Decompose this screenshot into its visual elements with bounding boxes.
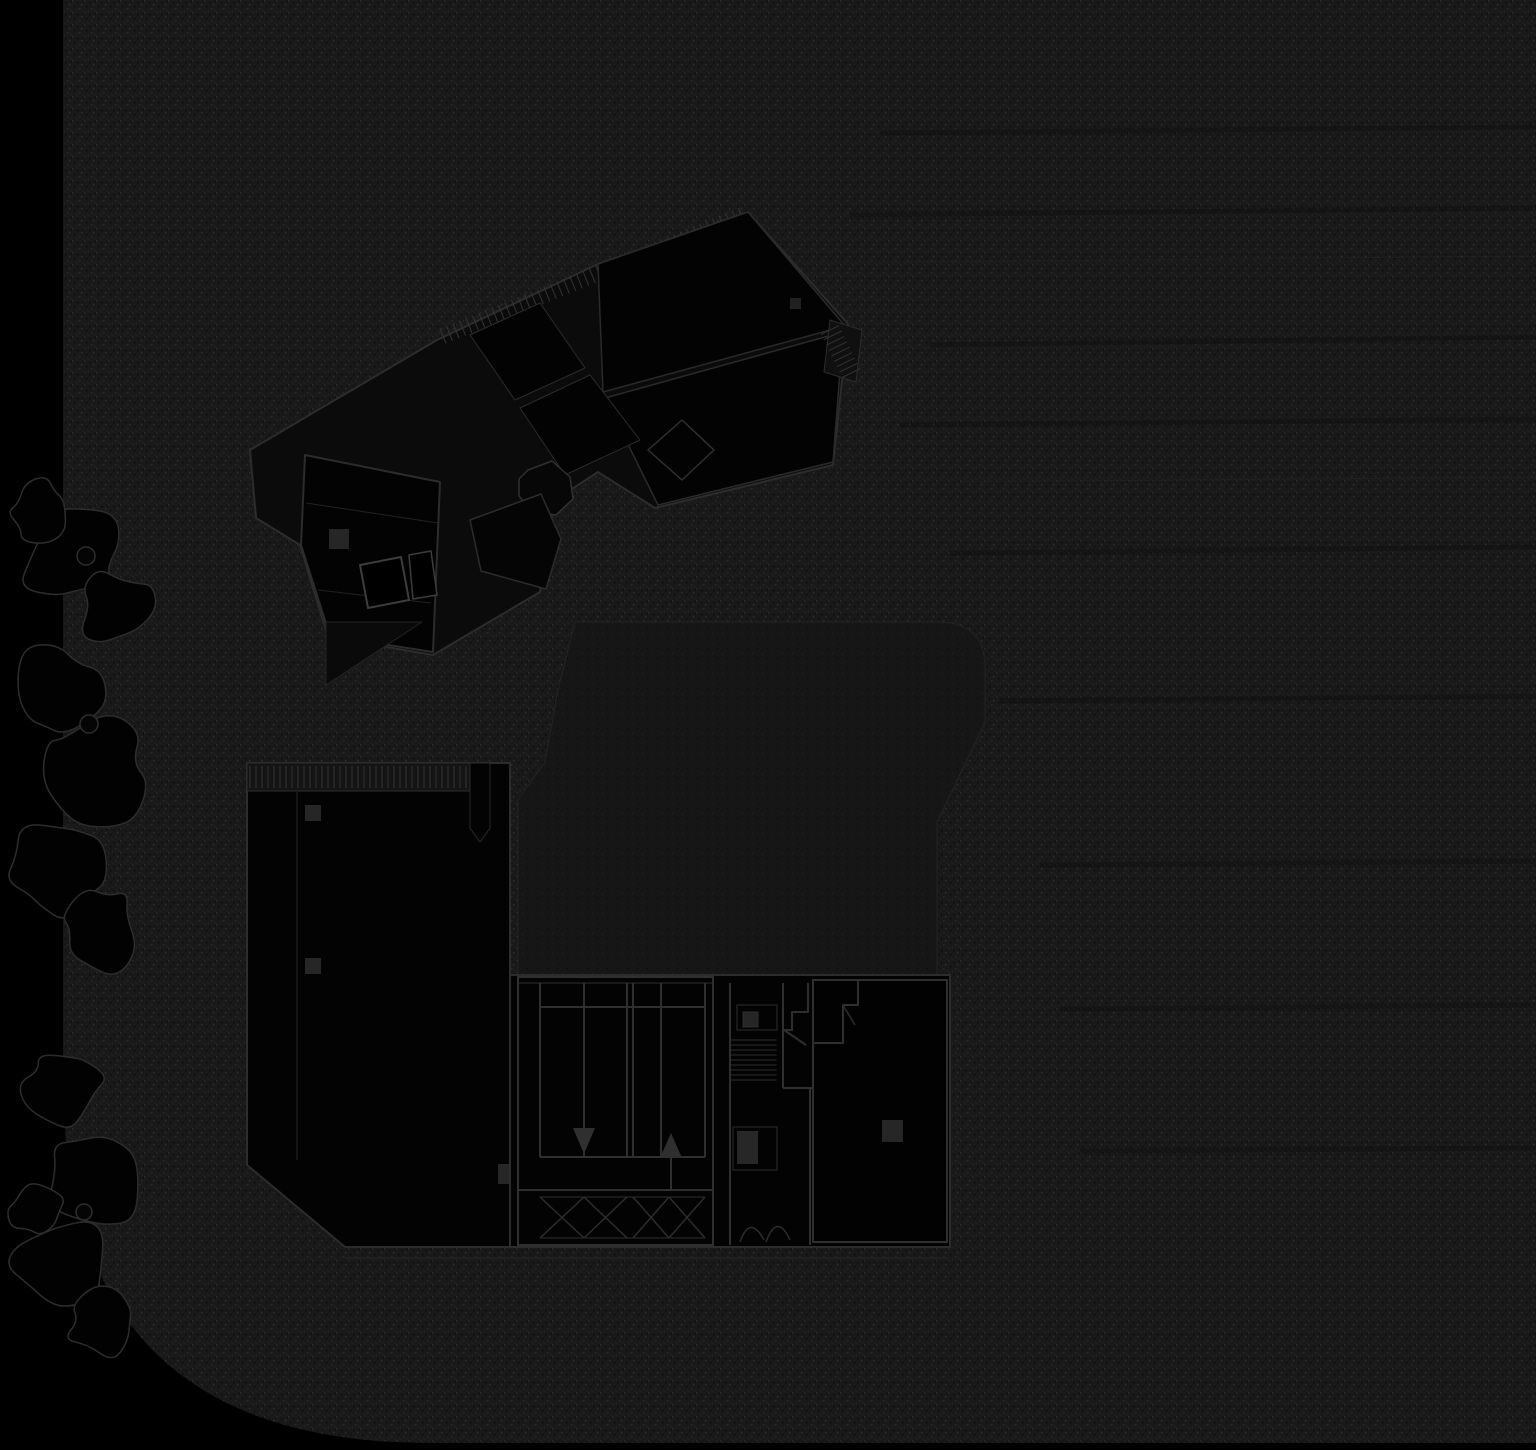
screenshot-root — [0, 0, 1536, 1450]
upper-small-room — [360, 557, 409, 608]
site-plan-canvas — [0, 0, 1536, 1450]
upper-wing-column — [329, 529, 349, 549]
tree-trunk-marker — [76, 1204, 92, 1220]
hall-column — [305, 958, 321, 974]
right-room-column — [882, 1120, 903, 1142]
terrace — [518, 622, 985, 975]
tree-trunk-marker — [80, 715, 98, 733]
entry-pillar — [470, 763, 490, 842]
duct — [743, 1012, 758, 1027]
lower-left-hall — [247, 763, 510, 1247]
closet-fixture — [737, 1131, 758, 1164]
upper-end-hatch — [824, 320, 862, 382]
hall-column — [305, 805, 321, 821]
ground-streak — [1080, 1148, 1536, 1151]
tree-canopy — [51, 1137, 138, 1224]
right-room — [813, 980, 947, 1242]
upper-hall-skylight — [790, 298, 801, 309]
plan-layers — [8, 0, 1536, 1443]
tree-trunk-marker — [77, 547, 95, 565]
